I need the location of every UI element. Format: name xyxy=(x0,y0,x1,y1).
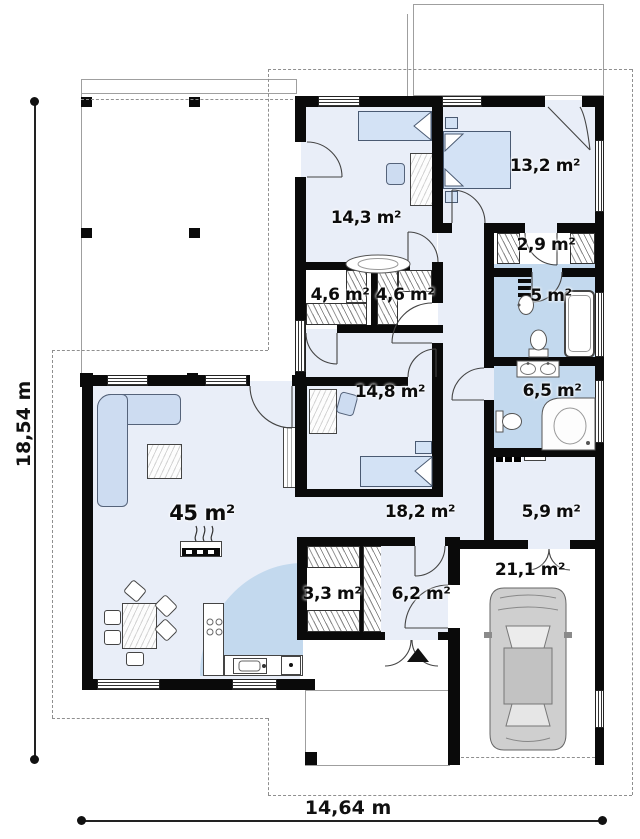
wall-segment xyxy=(562,268,604,277)
window-symbol xyxy=(232,679,277,690)
dining-table-symbol xyxy=(122,603,157,649)
window-symbol xyxy=(295,320,306,372)
wall-segment xyxy=(557,223,604,233)
dimension-dot xyxy=(30,97,39,106)
bed-symbol xyxy=(443,131,511,189)
chair-symbol xyxy=(126,652,144,666)
outline-dash xyxy=(268,69,269,350)
wall-segment xyxy=(494,268,532,277)
room-label-bedroom-1: 14,3 m² xyxy=(331,208,401,228)
wall-segment xyxy=(295,177,306,320)
dimension-dot xyxy=(30,755,39,764)
wall-segment xyxy=(297,537,415,546)
car-icon xyxy=(484,588,572,750)
wall-segment xyxy=(448,540,460,585)
pillar xyxy=(305,752,317,765)
entry-porch-outline xyxy=(305,690,450,766)
room-label-closet-1: 4,6 m² xyxy=(311,285,370,305)
fireplace-grate-cell xyxy=(197,550,203,554)
shelf-symbol xyxy=(518,286,531,290)
window-symbol xyxy=(595,690,604,728)
sofa-symbol xyxy=(97,394,128,507)
wall-segment xyxy=(570,540,604,549)
wall-segment xyxy=(247,375,250,386)
room-label-garage: 21,1 m² xyxy=(495,560,565,580)
window-symbol xyxy=(595,292,604,357)
roof-outline-line xyxy=(407,14,408,96)
room-label-hallway: 18,2 m² xyxy=(385,502,455,522)
nightstand-symbol xyxy=(445,117,458,129)
room-label-closet-2: 4,6 m² xyxy=(376,285,435,305)
dimension-width-label: 14,64 m xyxy=(305,797,392,819)
outline-dash xyxy=(632,69,633,795)
wall-segment xyxy=(432,343,443,497)
wall-segment xyxy=(595,443,604,690)
window-symbol xyxy=(97,679,160,690)
room-label-entry: 6,2 m² xyxy=(392,584,451,604)
wall-segment xyxy=(484,400,494,540)
dimension-dot xyxy=(77,816,86,825)
wall-segment xyxy=(448,628,460,765)
room-label-wardrobe-1: 2,9 m² xyxy=(517,235,576,255)
roof-outline xyxy=(413,4,604,96)
wall-segment xyxy=(438,632,460,640)
wall-segment xyxy=(484,223,494,368)
outline-dash xyxy=(52,350,268,351)
window-symbol xyxy=(205,375,247,386)
dimension-line-width xyxy=(81,820,603,822)
wall-segment xyxy=(295,96,306,142)
outline-dash xyxy=(268,795,632,796)
window-symbol xyxy=(595,140,604,212)
wall-segment xyxy=(82,386,93,690)
fireplace-grate-cell xyxy=(186,550,192,554)
entrance-arrow-icon xyxy=(407,648,429,662)
desk-symbol xyxy=(410,153,433,206)
terrace-roof-band xyxy=(81,79,297,94)
window-symbol xyxy=(442,96,482,107)
room-label-bedroom-2: 13,2 m² xyxy=(510,156,580,176)
wall-segment xyxy=(595,728,604,765)
wall-segment xyxy=(295,386,307,489)
wall-segment xyxy=(484,357,604,366)
dimension-dot xyxy=(598,816,607,825)
wall-segment xyxy=(306,262,410,270)
wall-segment xyxy=(360,96,442,107)
wall-segment xyxy=(337,325,443,333)
kitchen-counter xyxy=(203,603,224,676)
wall-segment xyxy=(445,537,460,546)
outline-dash xyxy=(52,350,53,718)
wall-segment xyxy=(448,540,528,549)
room-fill xyxy=(490,453,600,549)
pillar xyxy=(81,228,92,238)
dishwasher-symbol xyxy=(281,656,301,675)
outline-dash xyxy=(461,757,595,758)
outline-dash xyxy=(52,718,268,719)
wardrobe-shelving-symbol xyxy=(306,303,367,325)
outline-dash xyxy=(81,99,293,100)
window-symbol xyxy=(595,380,604,443)
outline-dash xyxy=(268,718,269,795)
coffee-table-symbol xyxy=(147,444,182,479)
wardrobe-shelving-symbol xyxy=(307,546,360,568)
wall-segment xyxy=(484,448,604,457)
nightstand-symbol xyxy=(445,191,458,203)
room-label-wardrobe-2: 3,3 m² xyxy=(303,584,362,604)
fireplace-grate-cell xyxy=(208,550,214,554)
window-symbol xyxy=(107,375,148,386)
room-label-living: 45 m² xyxy=(169,501,235,525)
wall-segment xyxy=(595,96,604,140)
kitchen-sink-symbol xyxy=(233,658,267,674)
room-label-utility: 5,9 m² xyxy=(522,502,581,522)
floor-plan: 45 m²14,3 m²13,2 m²14,8 m²18,2 m²2,9 m²5… xyxy=(0,0,640,839)
bed-symbol xyxy=(358,111,432,141)
wall-segment xyxy=(436,377,443,386)
shelf-symbol xyxy=(518,293,531,297)
wall-segment xyxy=(295,489,443,497)
wall-segment xyxy=(443,223,452,233)
nightstand-symbol xyxy=(415,441,432,454)
wall-segment xyxy=(277,679,315,690)
wardrobe-shelving-symbol xyxy=(307,610,360,632)
shelf-symbol xyxy=(518,279,531,283)
wall-segment xyxy=(292,375,306,386)
pillar xyxy=(80,373,93,387)
chair-symbol xyxy=(104,630,121,645)
outline-dash xyxy=(268,69,632,70)
dimension-depth-label: 18,54 m xyxy=(13,381,35,468)
wall-segment xyxy=(482,96,545,107)
desk-symbol xyxy=(309,389,337,434)
pillar xyxy=(189,228,200,238)
room-label-bathroom-2: 6,5 m² xyxy=(523,381,582,401)
desk-chair-symbol xyxy=(386,163,405,185)
wall-segment xyxy=(432,96,443,233)
pillar xyxy=(187,373,198,384)
chair-symbol xyxy=(104,610,121,625)
wall-segment xyxy=(160,679,232,690)
room-label-bedroom-3: 14,8 m² xyxy=(355,382,425,402)
bathroom-fill xyxy=(480,361,604,453)
wall-segment xyxy=(297,632,385,640)
room-label-bathroom-1: 5 m² xyxy=(530,286,571,306)
bed-symbol xyxy=(360,456,433,487)
window-symbol xyxy=(318,96,360,107)
